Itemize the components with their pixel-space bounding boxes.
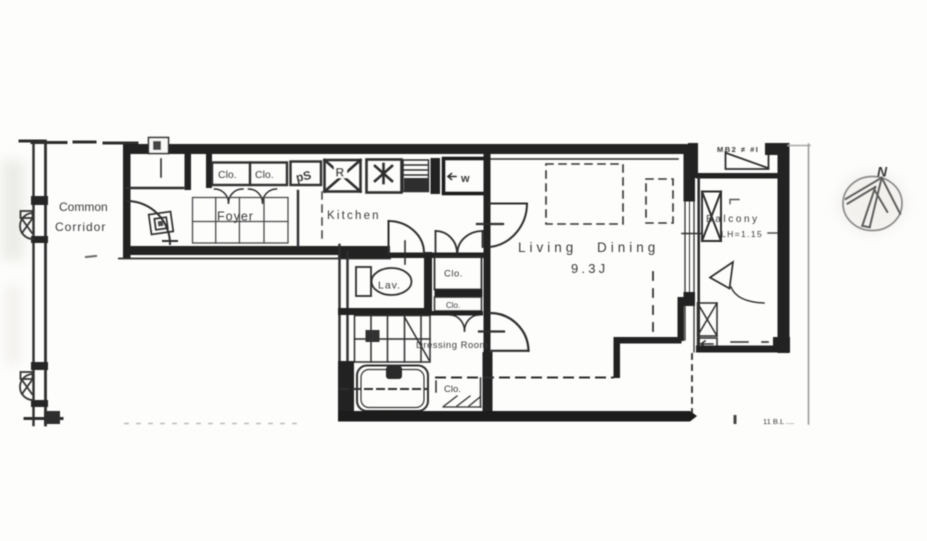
svg-text:Common: Common bbox=[59, 200, 108, 214]
svg-text:Clo.: Clo. bbox=[444, 269, 463, 280]
svg-text:Clo.: Clo. bbox=[255, 169, 274, 181]
svg-text:Dining: Dining bbox=[597, 240, 659, 255]
svg-text:Living: Living bbox=[518, 240, 577, 255]
svg-text:N: N bbox=[877, 164, 888, 180]
svg-text:R: R bbox=[336, 166, 345, 180]
svg-text:w: w bbox=[460, 173, 470, 185]
svg-text:LH=1.15: LH=1.15 bbox=[721, 229, 763, 239]
svg-text:Clo.: Clo. bbox=[218, 169, 237, 181]
svg-text:Foyer: Foyer bbox=[217, 210, 254, 224]
svg-text:Dressing Room: Dressing Room bbox=[416, 340, 488, 351]
svg-text:Lav.: Lav. bbox=[378, 280, 401, 292]
svg-text:Corridor: Corridor bbox=[55, 220, 106, 234]
svg-text:9.3J: 9.3J bbox=[571, 261, 608, 276]
svg-text:Balcony: Balcony bbox=[706, 214, 760, 225]
svg-text:Clo.: Clo. bbox=[446, 301, 460, 310]
svg-text:Kitchen: Kitchen bbox=[327, 210, 381, 222]
svg-text:MB2 ≠ #I: MB2 ≠ #I bbox=[717, 145, 759, 154]
svg-text:11 B.L ....: 11 B.L .... bbox=[763, 417, 794, 426]
svg-text:Clo.: Clo. bbox=[444, 384, 461, 395]
